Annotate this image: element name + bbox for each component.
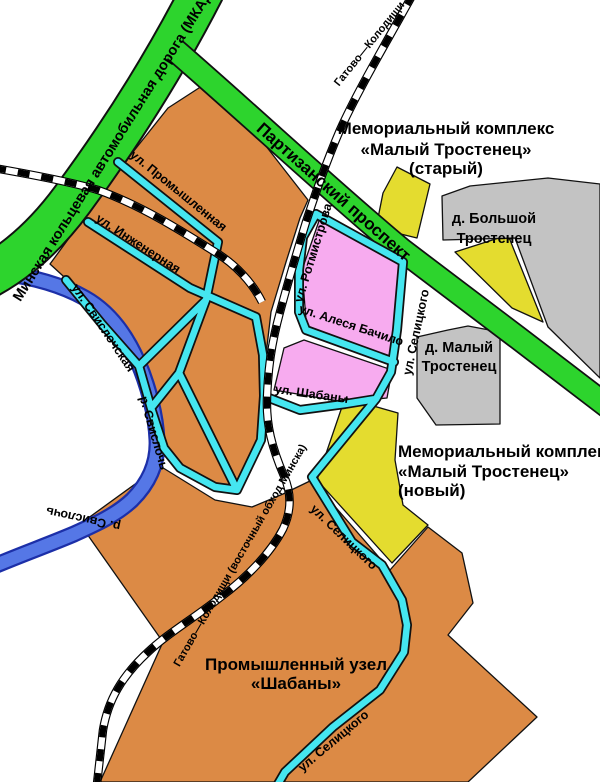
trostenets-map: Минская кольцевая автомобильная дорога (… [0,0,600,782]
label-village-bolshoy-line2: Тростенец [457,231,532,247]
label-memorial-old-line2: «Малый Тростенец» [361,140,532,159]
label-memorial-old-line3: (старый) [409,159,483,178]
label-village-maly-line2: Тростенец [422,359,497,375]
label-industrial-hub-line2: «Шабаны» [251,674,341,693]
label-memorial-new-line2: «Малый Тростенец» [398,462,569,481]
label-village-maly-line1: д. Малый [425,340,493,356]
label-memorial-new-line3: (новый) [398,481,465,500]
label-memorial-new-line1: Мемориальный комплекс [398,442,600,461]
map-canvas: Минская кольцевая автомобильная дорога (… [0,0,600,782]
label-village-bolshoy-line1: д. Большой [452,211,536,227]
label-memorial-old-line1: Мемориальный комплекс [338,119,555,138]
label-industrial-hub-line1: Промышленный узел [205,655,387,674]
